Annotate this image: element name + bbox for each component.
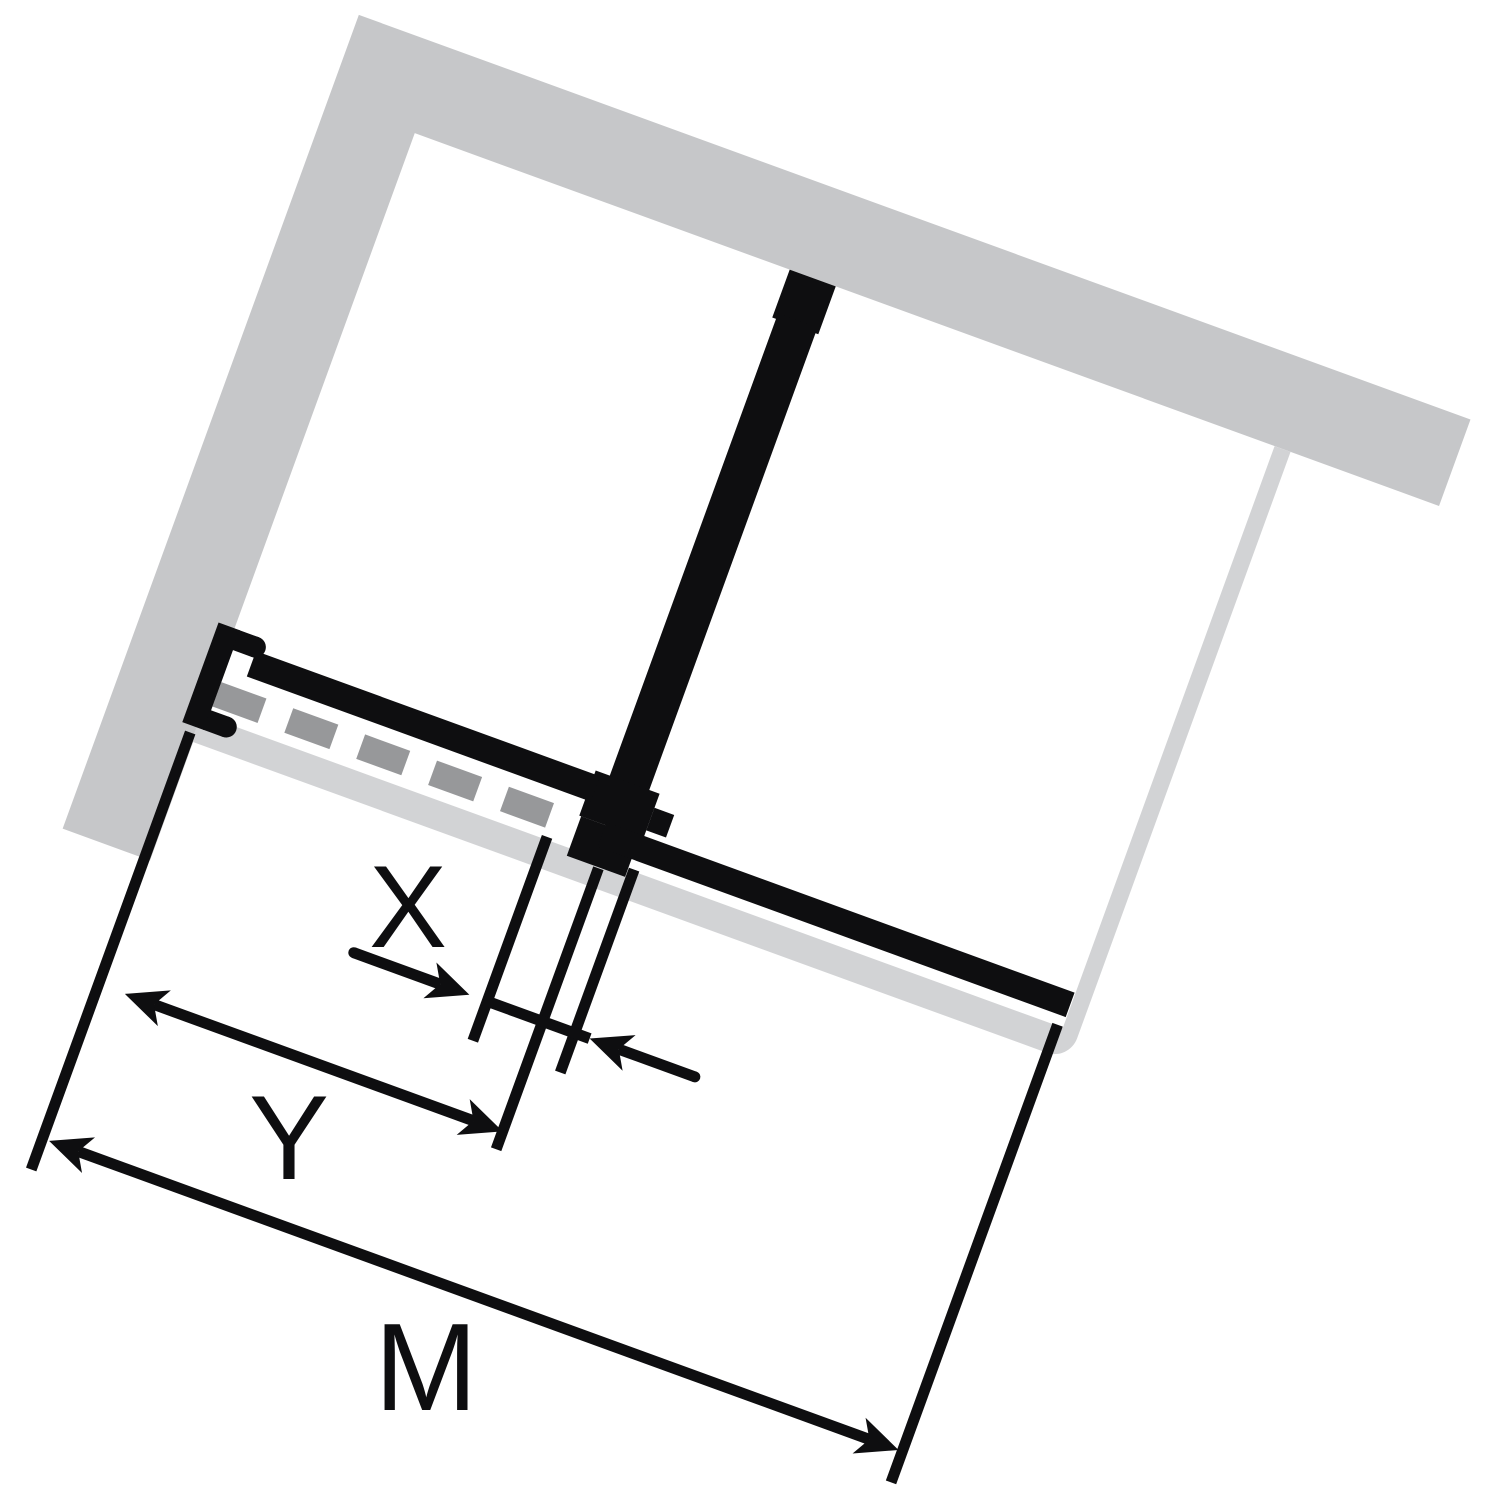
svg-text:M: M (374, 1299, 477, 1437)
svg-text:Y: Y (249, 1071, 329, 1205)
svg-text:X: X (369, 841, 447, 972)
